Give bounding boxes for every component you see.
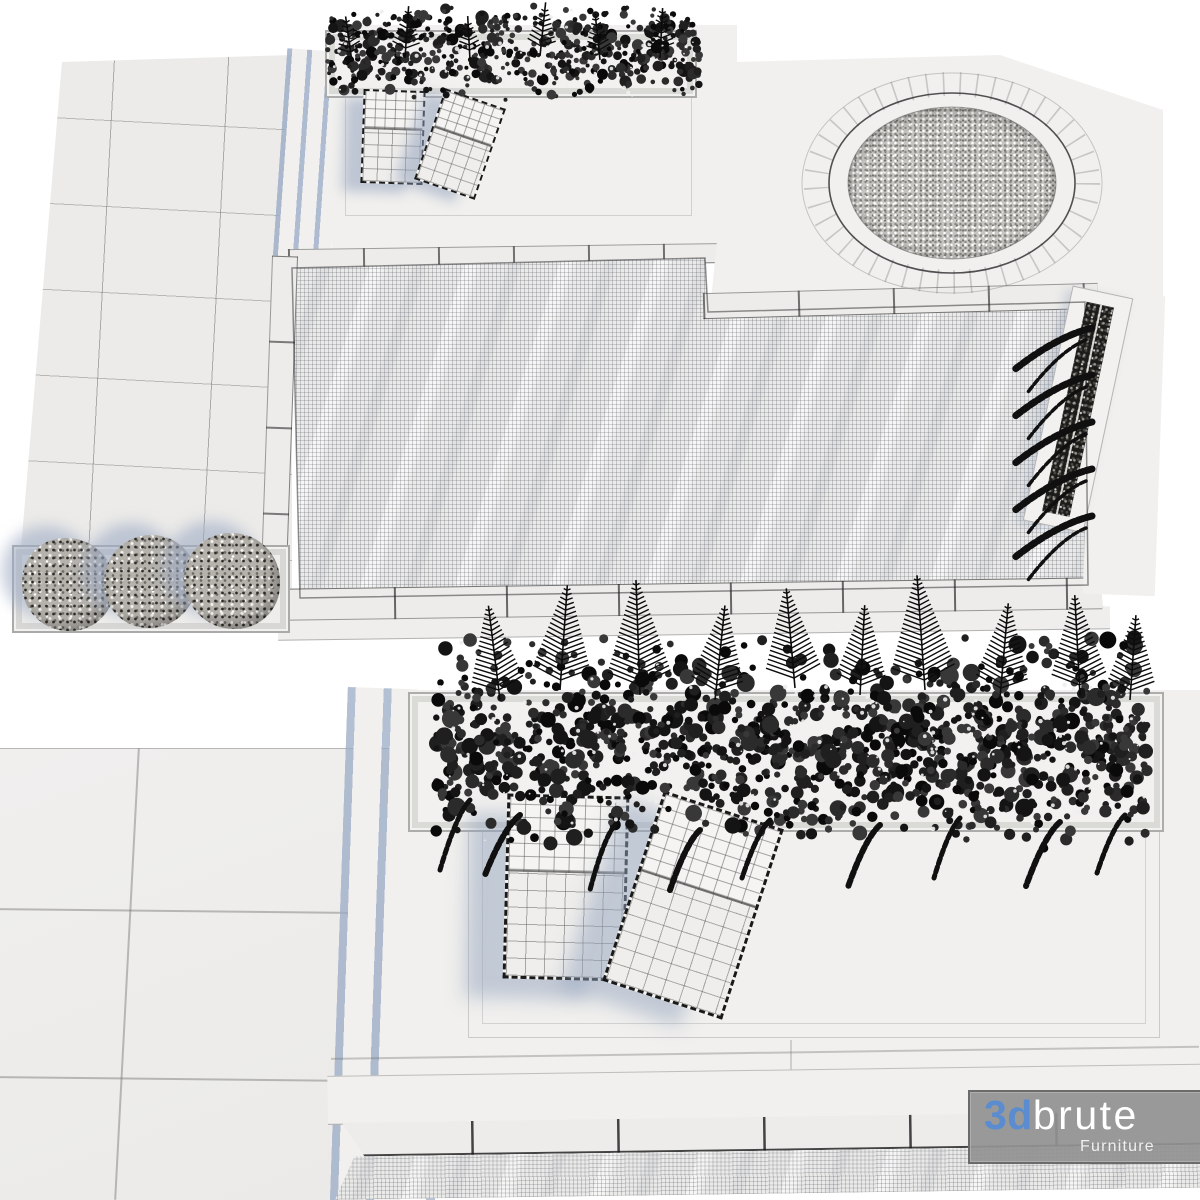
foliage-blob [503,638,511,646]
fern-leaflet [408,16,413,19]
fern-leaflet [1123,640,1134,645]
fern-leaflet [474,666,497,678]
fern-leaflet [614,649,639,661]
foliage-blob [504,13,510,19]
foliage-blob [1044,648,1050,654]
fern-leaflet [766,666,794,681]
fern-leaflet [639,661,668,675]
foliage-highlight [590,677,593,680]
fern-leaflet [477,653,495,663]
fern-leaflet [1079,671,1107,685]
fern-leaflet [343,21,347,23]
fern-leaflet [896,648,923,661]
brand-prefix: 3d [984,1092,1033,1138]
fern-leaflet [562,654,587,667]
fern-leaflet [702,651,720,661]
fern-leaflet [897,644,922,657]
foliage-blob [1014,671,1024,681]
foliage-blob [391,16,396,21]
fern-leaflet [792,655,817,668]
foliage-blob [1075,650,1089,664]
fern-leaflet [1136,619,1139,621]
fern-leaflet [638,635,659,645]
foliage-blob [823,653,838,668]
foliage-blob [427,15,433,21]
topiary-bush [184,533,280,629]
foliage-blob [329,16,333,20]
fern-leaflet [1131,675,1153,686]
foliage-blob [561,639,569,647]
fern-leaflet [1001,676,1028,690]
foliage-blob [391,14,397,20]
fern-leaflet [710,634,722,641]
foliage-blob [680,20,684,24]
foliage-blob [855,663,866,674]
foliage-blob [563,7,569,13]
fern-leaflet [718,661,739,672]
fern-leaflet [718,665,740,677]
foliage-blob [491,678,499,686]
fern-leaflet [1132,667,1151,677]
fern-leaflet [773,635,791,644]
foliage-blob [850,668,862,680]
foliage-highlight [1011,648,1014,651]
fern-leaflet [1113,665,1132,675]
fern-leaflet [659,11,662,13]
foliage-blob [488,19,493,24]
fern-leaflet [894,657,923,672]
fern-leaflet [545,10,549,12]
foliage-highlight [1043,686,1045,688]
foliage-blob [442,9,447,14]
fern-leaflet [537,18,544,22]
fern-leaflet [1002,663,1024,675]
fern-leaflet [923,664,955,680]
foliage-highlight [1089,686,1092,689]
foliage-blob [1039,636,1050,647]
fern-leaflet [861,661,882,671]
brand-suffix: brute [1033,1092,1139,1138]
foliage-blob [413,16,418,21]
fern-leaflet [617,640,639,650]
foliage-blob [425,14,431,20]
foliage-blob [1069,652,1078,661]
foliage-blob [1090,670,1096,676]
fern-leaflet [1077,641,1095,650]
fern-leaflet [1078,658,1102,670]
fern-leaflet [922,651,950,665]
fern-leaflet [841,660,862,670]
foliage-blob [667,20,672,25]
fern-leaflet [563,637,582,647]
fern-leaflet [1109,674,1131,685]
fern-leaflet [1004,642,1019,650]
foliage-blob [499,676,511,688]
fern-leaflet [496,667,520,680]
fern-leaflet [836,673,861,685]
fern-leaflet [1003,659,1024,670]
fern-leaflet [638,648,663,660]
fern-leaflet [900,635,922,646]
foliage-highlight [921,680,923,682]
fern-leaflet [1111,670,1132,680]
fern-leaflet [563,641,584,651]
fern-leaflet [1001,672,1026,685]
fern-leaflet [1053,668,1079,681]
fern-leaflet [717,670,741,683]
fern-leaflet [639,670,671,685]
fern-leaflet [846,647,862,655]
foliage-blob [631,20,636,25]
foliage-blob [795,654,807,666]
fern-leaflet [638,644,661,655]
lounger-seat [362,129,422,183]
foliage-blob [986,676,993,683]
foliage-blob [351,12,356,17]
foliage-blob [857,659,867,669]
foliage-blob [719,681,726,688]
fern-leaflet [704,646,721,655]
foliage-highlight [689,686,692,689]
fern-leaflet [893,662,924,678]
foliage-blob [479,11,484,16]
foliage-blob [476,649,482,655]
foliage-highlight [507,18,510,21]
fern-leaflet [923,655,952,670]
foliage-blob [1042,658,1053,669]
fern-leaflet [1077,633,1092,640]
foliage-blob [592,11,599,18]
fern-leaflet [975,674,1002,688]
fern-leaflet [1003,655,1022,665]
foliage-blob [750,665,756,671]
foliage-blob [720,646,731,657]
foliage-blob [903,677,909,683]
fern-leaflet [1135,623,1140,625]
foliage-highlight [733,656,736,659]
fern-leaflet [610,662,639,676]
fern-leaflet [1054,664,1079,676]
foliage-blob [800,674,807,681]
foliage-blob [539,13,544,18]
fern-leaflet [717,674,742,687]
foliage-blob [602,669,613,680]
foliage-blob [615,682,621,688]
foliage-blob [637,669,648,680]
foliage-blob [1125,664,1133,672]
foliage-blob [685,17,690,22]
fern-leaflet [473,670,497,683]
fern-leaflet [479,644,494,652]
foliage-blob [655,672,662,679]
fern-leaflet [479,640,493,648]
fern-leaflet [544,18,551,22]
fern-leaflet [638,640,660,650]
foliage-blob [438,19,442,23]
watermark: 3dbrute Furniture [968,1090,1200,1164]
foliage-blob [942,673,949,680]
foliage-blob [757,635,767,645]
fern-leaflet [495,655,515,666]
foliage-blob [544,681,550,687]
foliage-blob [555,651,569,665]
fern-leaflet [844,651,862,660]
foliage-blob [652,645,661,654]
foliage-blob [675,654,688,667]
fern-leaflet [495,659,516,670]
foliage-blob [523,16,528,21]
foliage-blob [1078,669,1086,677]
foliage-blob [625,6,629,10]
foliage-highlight [670,16,673,19]
foliage-blob [503,20,507,24]
foliage-blob [1110,681,1117,688]
foliage-blob [503,19,509,25]
foliage-blob [571,651,578,658]
foliage-blob [403,13,414,24]
foliage-blob [449,6,453,10]
fern-leaflet [861,674,886,686]
foliage-highlight [549,15,553,19]
foliage-blob [1098,680,1109,691]
fern-leaflet [981,662,1003,674]
fern-leaflet [694,667,718,680]
fern-leaflet [1118,653,1133,661]
foliage-blob [456,660,468,672]
foliage-blob [721,665,738,682]
fern-leaflet [407,20,414,23]
foliage-blob [951,681,958,688]
foliage-blob [961,634,968,641]
foliage-blob [693,666,702,675]
fern-leaflet [1135,632,1143,636]
foliage-blob [1119,641,1128,650]
foliage-blob [538,648,547,657]
fern-leaflet [861,670,885,682]
foliage-blob [614,650,620,656]
fern-leaflet [862,648,878,656]
fern-leaflet [1129,627,1135,630]
foliage-blob [397,17,402,22]
lounger-backrest [364,91,423,131]
render-canvas: 3dbrute Furniture [0,0,1200,1200]
fern-leaflet [539,13,544,16]
lounger-backrest [508,797,626,875]
foliage-blob [375,13,379,17]
fern-leaflet [922,642,947,655]
foliage-blob [621,6,627,12]
foliage-blob [890,665,900,675]
fern-leaflet [494,650,512,660]
foliage-blob [437,679,444,686]
foliage-blob [1099,632,1116,649]
foliage-blob [1012,676,1020,684]
foliage-blob [1020,666,1028,674]
fern-leaflet [1131,671,1152,681]
fern-leaflet [609,667,639,682]
foliage-blob [692,658,707,673]
fern-leaflet [1130,623,1135,625]
fern-leaflet [1133,645,1145,651]
foliage-blob [526,660,533,667]
foliage-blob [529,641,535,647]
fern-leaflet [536,657,563,670]
fern-leaflet [1056,655,1078,666]
foliage-blob [1068,661,1075,668]
foliage-blob [530,3,537,10]
fern-leaflet [922,647,949,660]
foliage-blob [440,4,451,15]
fern-stem [1130,615,1136,700]
fern-leaflet [496,663,519,675]
foliage-blob [903,674,912,683]
fern-leaflet [639,653,665,666]
foliage-blob [936,679,943,686]
fern-leaflet [1078,654,1100,665]
fern-leaflet [1108,678,1132,690]
fern-leaflet [720,644,735,652]
foliage-blob [457,655,464,662]
foliage-blob [557,662,566,671]
fern-leaflet [977,670,1002,683]
fern-leaflet [1132,662,1150,671]
fern-leaflet [862,644,877,651]
foliage-blob [738,672,750,684]
foliage-blob [546,667,554,675]
foliage-blob [880,676,894,690]
fern-leaflet [993,632,1005,638]
fern-leaflet [473,674,499,688]
fern-leaflet [1058,651,1079,661]
fern-leaflet [838,668,862,680]
fern-leaflet [1002,668,1026,680]
foliage-blob [627,666,633,672]
fern-leaflet [984,653,1003,663]
fern-leaflet [534,661,562,675]
fern-leaflet [656,20,662,23]
foliage-blob [461,675,468,682]
fern-leaflet [1125,635,1134,640]
foliage-blob [530,679,536,685]
fern-leaflet [862,657,881,666]
foliage-highlight [438,685,442,689]
foliage-blob [667,641,674,648]
fern-leaflet [1061,638,1077,646]
fern-leaflet [401,20,408,23]
fern-leaflet [615,645,638,656]
foliage-highlight [570,9,573,12]
foliage-blob [673,661,688,676]
fern-leaflet [541,9,545,11]
fern-leaflet [1120,648,1134,655]
fern-leaflet [1133,649,1147,656]
foliage-blob [493,651,502,660]
foliage-highlight [1063,683,1067,687]
foliage-highlight [499,681,503,685]
foliage-highlight [357,14,359,16]
fern-leaflet [476,657,496,668]
foliage-blob [643,677,654,688]
foliage-blob [916,671,923,678]
fern-leaflet [698,659,719,670]
foliage-blob [1127,662,1142,677]
fern-leaflet [1059,647,1078,656]
fern-leaflet [537,652,562,665]
foliage-blob [513,13,521,21]
fern-leaflet [494,646,511,655]
fern-leaflet [990,640,1005,648]
fern-leaflet [992,636,1006,643]
fern-leaflet [1052,673,1080,687]
fern-leaflet [690,676,717,690]
foliage-blob [996,661,1003,668]
foliage-blob [652,7,656,11]
fern-leaflet [721,635,733,642]
fern-leaflet [863,639,876,646]
fern-leaflet [767,661,794,675]
fern-leaflet [1135,627,1141,630]
foliage-blob [1046,643,1053,650]
foliage-blob [365,17,370,22]
fern-leaflet [1134,636,1143,641]
foliage-blob [947,682,953,688]
fern-leaflet [793,663,821,678]
fern-leaflet [988,645,1005,654]
fern-leaflet [696,663,718,675]
fern-leaflet [1063,629,1076,636]
fern-leaflet [497,671,523,685]
fern-leaflet [1077,637,1093,645]
fern-leaflet [849,638,862,645]
fern-leaflet [899,640,923,652]
fern-leaflet [772,640,791,650]
lounger-seat [506,872,625,979]
foliage-blob [655,662,664,671]
fern-leaflet [613,653,639,666]
foliage-blob [513,13,518,18]
fern-leaflet [791,638,810,648]
foliage-blob [598,659,605,666]
fern-leaflet [405,11,409,13]
foliage-highlight [824,685,828,689]
fern-leaflet [1062,634,1077,641]
foliage-blob [601,11,607,17]
foliage-blob [491,17,499,25]
fern-leaflet [708,638,722,645]
fern-leaflet [851,634,863,640]
fern-leaflet [901,631,922,641]
fern-leaflet [895,653,923,667]
spa-water [848,107,1056,259]
fern-leaflet [706,642,721,650]
foliage-blob [1029,643,1035,649]
topiary-bush [22,538,115,631]
foliage-blob [587,675,600,688]
fern-leaflet [892,666,924,682]
foliage-blob [582,666,597,681]
fern-leaflet [408,12,412,14]
fern-leaflet [541,644,563,655]
foliage-blob [490,664,498,672]
fern-leaflet [561,663,589,677]
foliage-blob [444,9,448,13]
foliage-blob [414,10,422,18]
fern-leaflet [493,638,507,646]
deck-molding [331,1046,1199,1060]
fern-leaflet [612,658,640,671]
foliage-blob [666,678,678,690]
foliage-blob [1113,680,1120,687]
